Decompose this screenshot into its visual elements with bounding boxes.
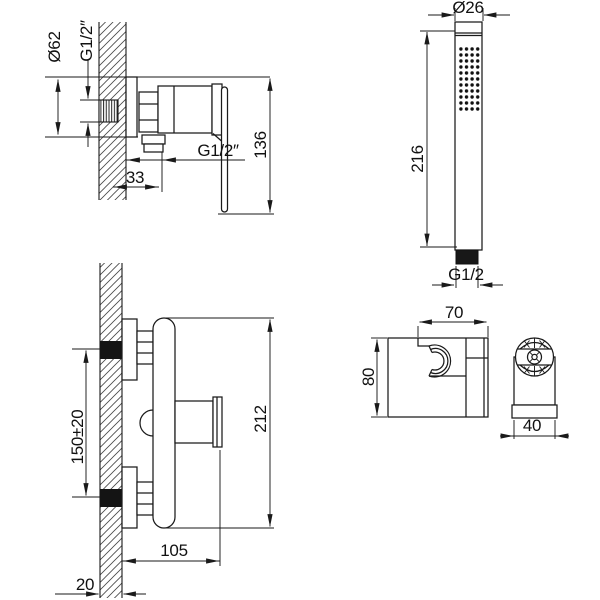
dim-depth: 105 [160, 541, 187, 560]
supply-pipe-bottom [100, 489, 122, 507]
valve-side-view: Ø62 G1/2″ 136 G1/2″ 33 [45, 20, 274, 214]
mixer-body [122, 318, 222, 528]
dim-outlet-offset: 33 [126, 168, 144, 187]
dim-head-diameter: Ø26 [452, 0, 483, 17]
dim-overall-height: 136 [251, 131, 270, 158]
dim-bracket-depth: 40 [523, 416, 541, 435]
dim-bracket-width: 70 [445, 303, 463, 322]
end-cap [212, 84, 222, 135]
dim-shower-length: 216 [408, 145, 427, 172]
mixer-wall-view: 150±20 212 105 20 [55, 263, 274, 598]
bracket-side-view: 70 80 [359, 303, 488, 417]
wall-section-bottom [100, 263, 122, 598]
dim-wall-thickness: 20 [76, 575, 94, 594]
escutcheon-bottom [122, 467, 137, 528]
union-nut-bottom [137, 482, 153, 515]
technical-drawing-canvas: Ø62 G1/2″ 136 G1/2″ 33 Ø26 216 [0, 0, 600, 600]
hex-nut [139, 92, 158, 132]
dim-inlet-thread: G1/2″ [77, 20, 96, 62]
spray-nozzle-grid [458, 46, 480, 112]
wall-flange [126, 77, 137, 137]
dim-pipe-spacing: 150±20 [68, 410, 87, 465]
cartridge-dome [140, 410, 153, 436]
escutcheon-top [122, 319, 137, 380]
dim-bracket-height: 80 [359, 368, 378, 386]
valve-cylinder [175, 401, 213, 443]
technical-drawing-page: Ø62 G1/2″ 136 G1/2″ 33 Ø26 216 [0, 0, 600, 600]
bracket-body [388, 338, 488, 417]
dim-connector-thread: G1/2 [448, 265, 484, 284]
dim-body-height: 212 [251, 405, 270, 432]
pivot-screw [528, 350, 542, 364]
outlet-pipe [144, 144, 163, 152]
dim-flange-diameter: Ø62 [45, 31, 64, 62]
dim-outlet-thread: G1/2″ [197, 141, 239, 160]
outlet-nut [142, 135, 165, 144]
bracket-front-view: 40 [500, 338, 569, 439]
supply-pipe-top [100, 341, 122, 359]
hand-shower-view: Ø26 216 G1/2 [408, 0, 510, 288]
inlet-threaded-pipe [99, 100, 118, 122]
bracket-front-dimensions: 40 [500, 416, 569, 439]
mixer-column [153, 318, 175, 528]
union-nut-top [137, 331, 153, 364]
connector-thread [456, 250, 478, 264]
